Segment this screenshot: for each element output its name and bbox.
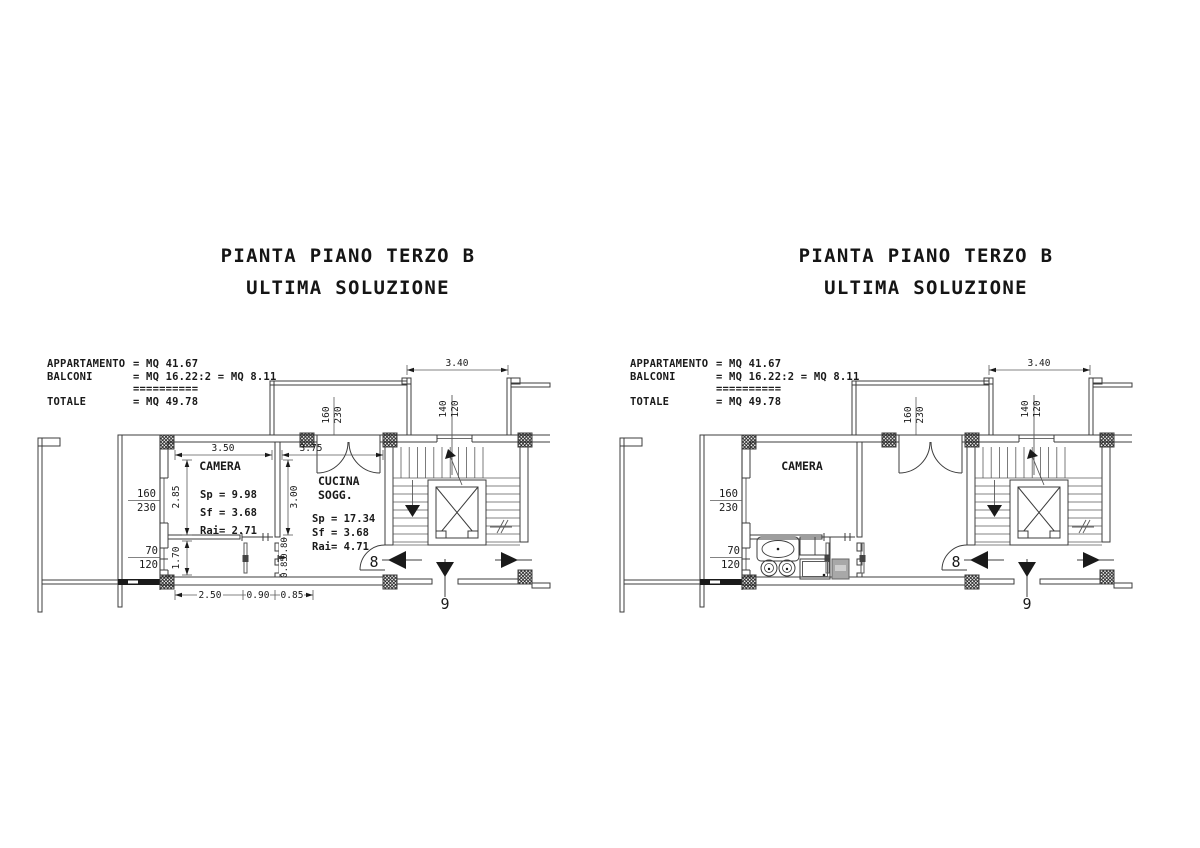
stair-window-width: 140 <box>438 400 449 417</box>
title-line1: PIANTA PIANO TERZO B <box>766 240 1086 272</box>
door8-number: 8 <box>951 553 960 571</box>
camera-room-label: CAMERA <box>199 459 241 473</box>
stair-right-wall <box>1102 447 1110 542</box>
dim-bottom-090: 0.90 <box>247 590 270 601</box>
partition-camera-cucina <box>857 442 862 537</box>
stair-window-height: 120 <box>450 400 461 417</box>
camera-sf: Sf = 3.68 <box>200 507 257 519</box>
dim-cucina-depth: 3.00 <box>289 485 300 508</box>
dim-bottom-085: 0.85 <box>281 590 304 601</box>
small-window-height: 120 <box>721 559 740 571</box>
dim-bottom-250: 2.50 <box>199 590 222 601</box>
dim-camera-width: 3.50 <box>212 443 235 454</box>
dim-camera-depth: 2.85 <box>171 486 182 509</box>
plan-title-right: PIANTA PIANO TERZO B ULTIMA SOLUZIONE <box>766 240 1086 304</box>
dim-bagno-depth: 1.70 <box>171 546 182 569</box>
stair-down-arrow <box>987 505 1002 517</box>
camera-window-width: 160 <box>719 488 738 500</box>
door9-number: 9 <box>440 595 449 613</box>
dim-door-080: 0.80 <box>280 537 290 559</box>
cucina-room-label: CUCINA <box>318 474 360 488</box>
door9-arrow <box>1018 562 1036 577</box>
floor-plan-right: 893.4016023014012016023070120CAMERA <box>612 345 1197 630</box>
wall-pillar <box>882 433 896 447</box>
camera-sp: Sp = 9.98 <box>200 489 257 501</box>
balcony-door-leaf <box>349 442 380 473</box>
wall-pillar <box>742 575 756 589</box>
bottom-wall <box>160 577 383 585</box>
wall-pillar <box>160 575 174 589</box>
stair-window-height: 120 <box>1032 400 1043 417</box>
plan-title-left: PIANTA PIANO TERZO B ULTIMA SOLUZIONE <box>188 240 508 304</box>
floor-plan-left: 893.4016023014012016023070120CAMERA3.503… <box>30 345 615 630</box>
camera-window-width: 160 <box>137 488 156 500</box>
dim-cucina-width: 3.75 <box>300 443 323 454</box>
wall-pillar <box>965 575 979 589</box>
cucina-sp: Sp = 17.34 <box>312 513 375 525</box>
elevator-door-notch <box>468 531 478 538</box>
stair-left-wall <box>967 447 975 545</box>
camera-rai: Rai= 2.71 <box>200 525 257 537</box>
door8-number: 8 <box>369 553 378 571</box>
top-door-width: 160 <box>321 406 332 423</box>
door8-arrow <box>388 551 406 569</box>
top-door-height: 230 <box>333 406 344 423</box>
wall-fill <box>700 579 742 585</box>
door8-arrow <box>970 551 988 569</box>
wall-pillar <box>518 570 532 584</box>
partition-camera-cucina <box>275 442 280 537</box>
wall-pillar <box>1100 570 1114 584</box>
fixtures-group <box>757 537 849 579</box>
cucina-room-label2: SOGG. <box>318 488 353 502</box>
stair-window-width: 140 <box>1020 400 1031 417</box>
wall-pillar <box>383 575 397 589</box>
title-line2: ULTIMA SOLUZIONE <box>188 272 508 304</box>
dim-balcony-width: 3.40 <box>446 358 469 369</box>
door9-arrow <box>436 562 454 577</box>
bathtub-drain <box>777 548 780 551</box>
elevator-door-notch <box>436 531 446 538</box>
wall-pillar <box>742 435 756 449</box>
stair-down-arrow <box>405 505 420 517</box>
title-line1: PIANTA PIANO TERZO B <box>188 240 508 272</box>
top-door-width: 160 <box>903 406 914 423</box>
small-window-width: 70 <box>727 545 740 557</box>
wall-pillar <box>160 435 174 449</box>
wall-pillar <box>1100 433 1114 447</box>
elevator-door-notch <box>1050 531 1060 538</box>
right-exit-arrow <box>501 552 518 568</box>
stair-left-wall <box>385 447 393 545</box>
camera-room-label: CAMERA <box>781 459 823 473</box>
camera-window-height: 230 <box>137 502 156 514</box>
small-window-height: 120 <box>139 559 158 571</box>
wall-pillar <box>383 433 397 447</box>
shower-drain <box>823 574 826 577</box>
camera-window-height: 230 <box>719 502 738 514</box>
bottom-wall <box>742 577 965 585</box>
title-line2: ULTIMA SOLUZIONE <box>766 272 1086 304</box>
top-door-height: 230 <box>915 406 926 423</box>
dim-balcony-width: 3.40 <box>1028 358 1051 369</box>
right-exit-arrow <box>1083 552 1100 568</box>
wall-fill <box>118 579 160 585</box>
balcony-door-leaf <box>899 442 930 473</box>
walls-group <box>118 433 550 590</box>
dim-door-085: 0.85 <box>280 556 290 578</box>
balcony-door-leaf <box>931 442 962 473</box>
elevator-door-notch <box>1018 531 1028 538</box>
cucina-rai: Rai= 4.71 <box>312 541 369 553</box>
small-window-width: 70 <box>145 545 158 557</box>
wall-pillar <box>518 433 532 447</box>
page: { "colors": { "drawing_line": "#3c3c3c",… <box>0 0 1200 848</box>
cucina-sf: Sf = 3.68 <box>312 527 369 539</box>
wall-pillar <box>965 433 979 447</box>
door9-number: 9 <box>1022 595 1031 613</box>
stair-right-wall <box>520 447 528 542</box>
